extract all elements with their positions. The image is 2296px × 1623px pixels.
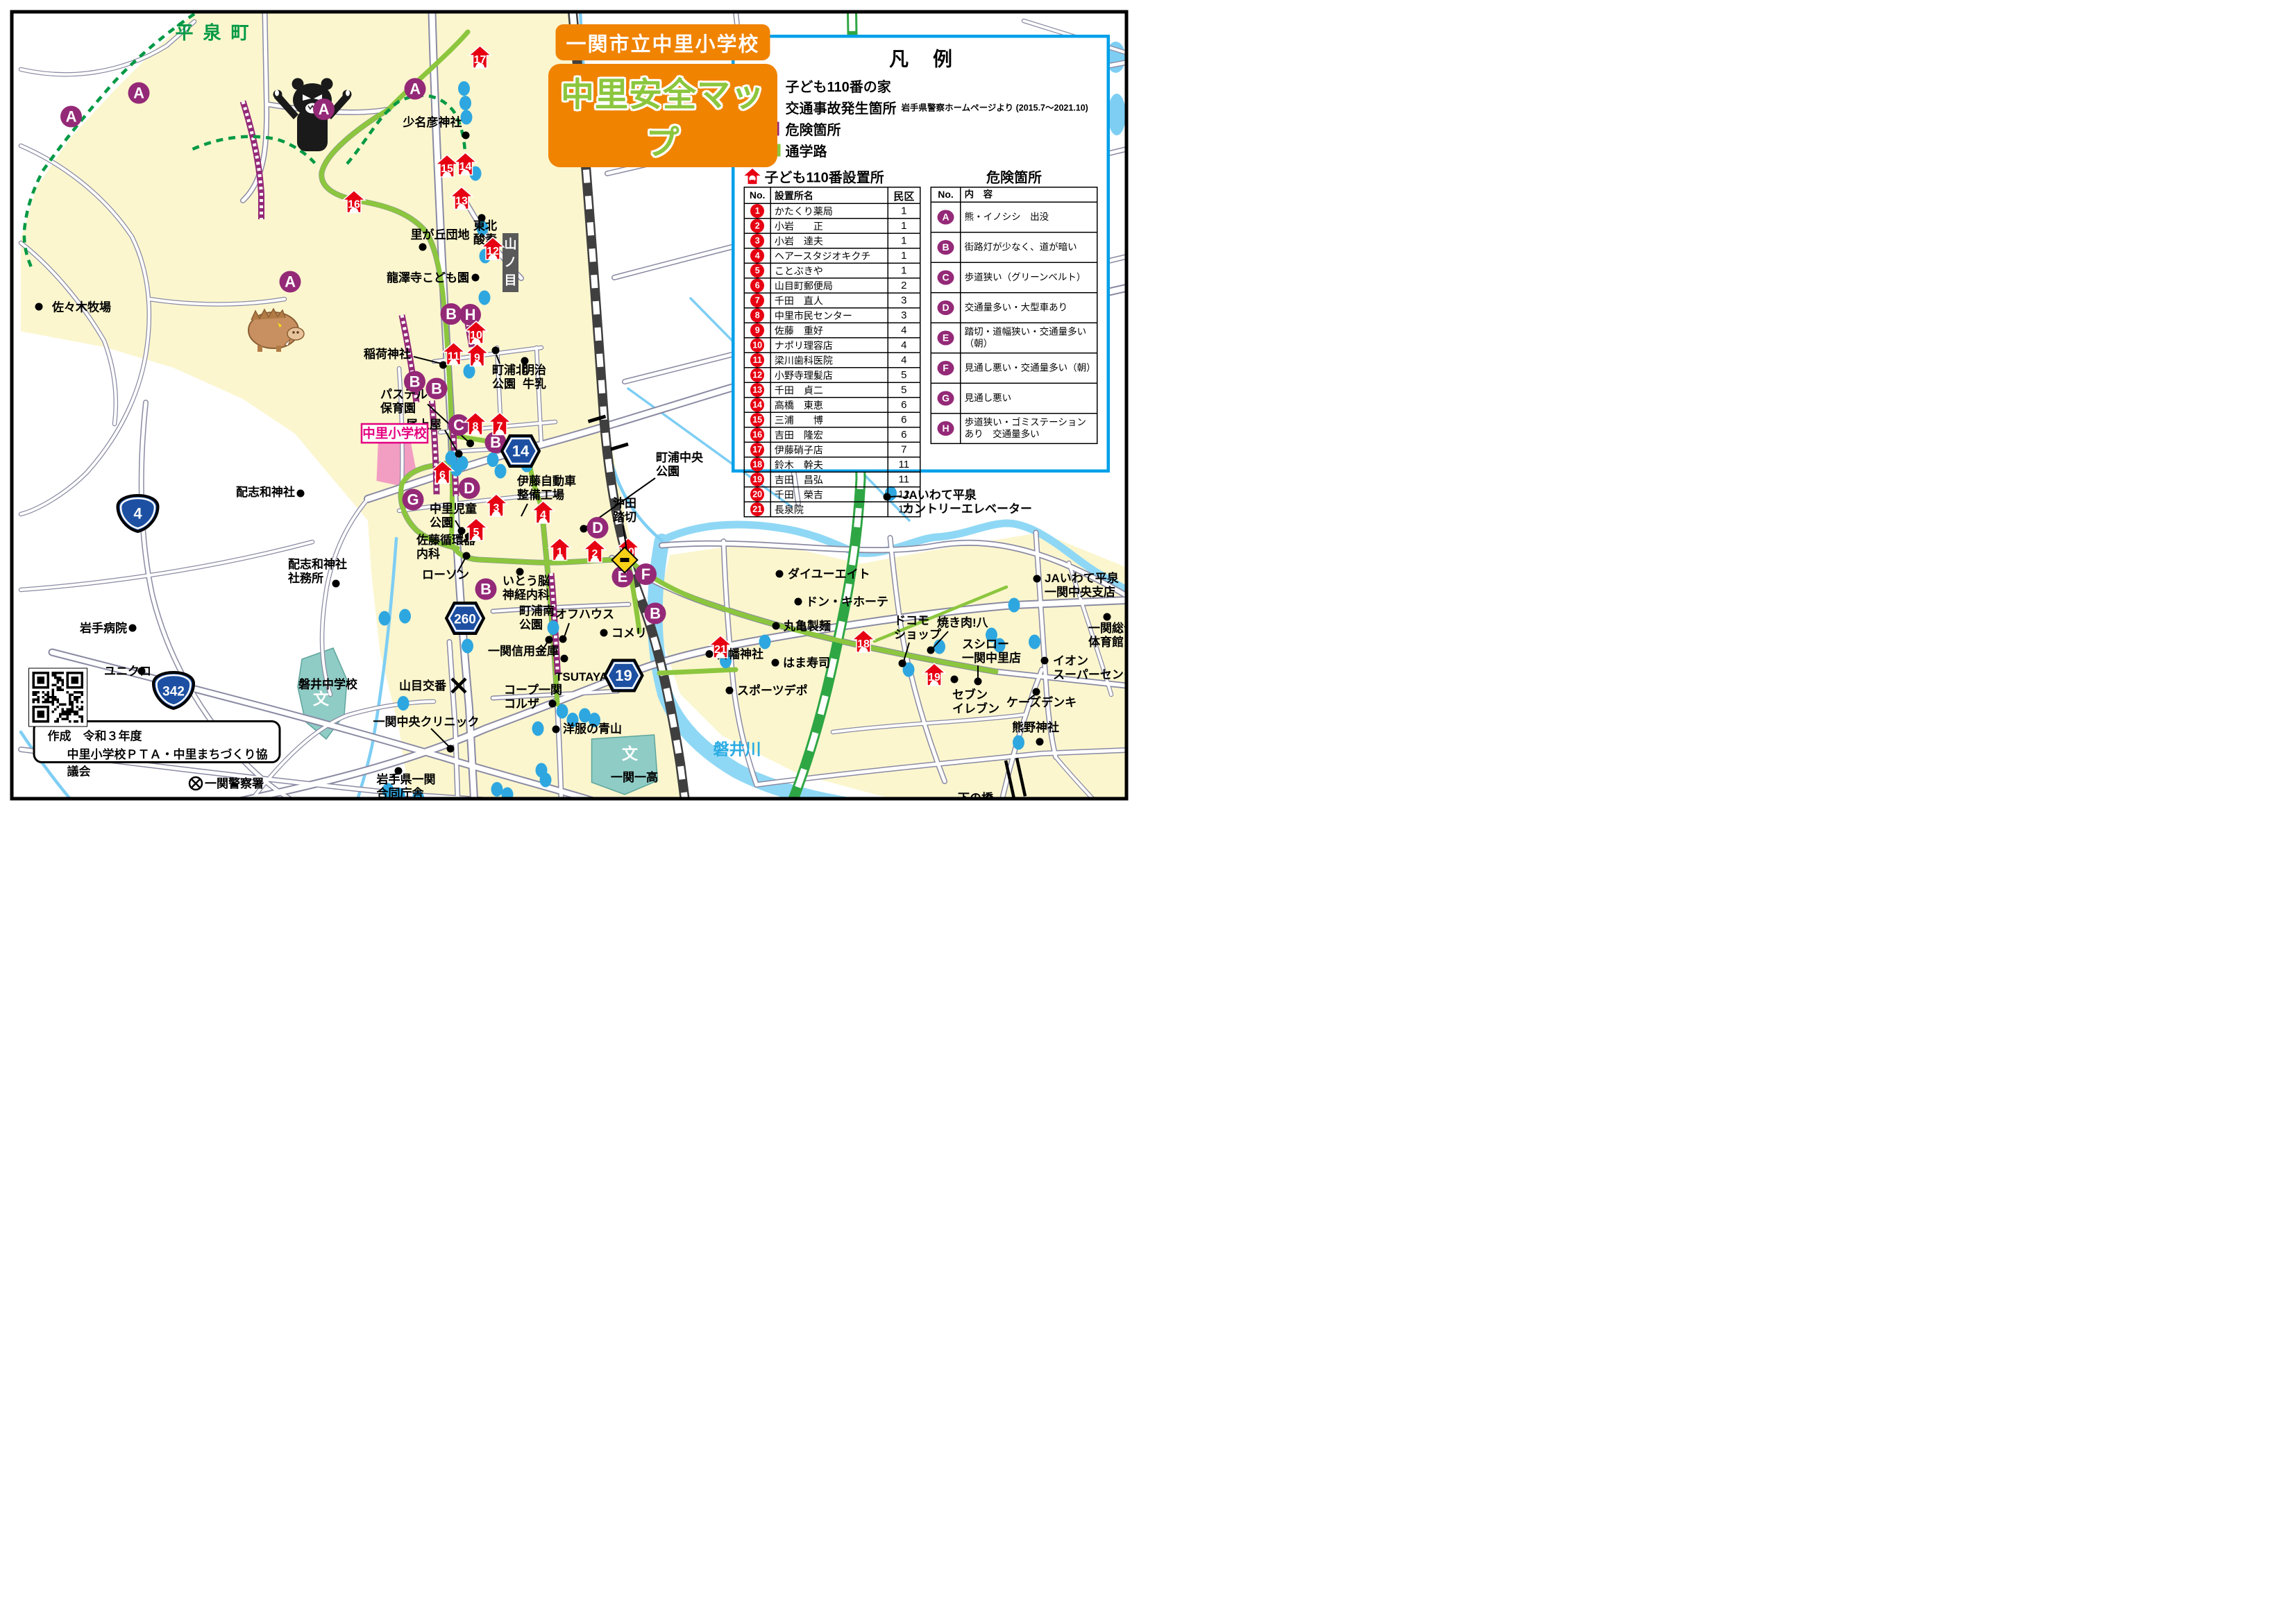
station-district: 1 bbox=[888, 263, 920, 278]
station-name: 吉田 昌弘 bbox=[770, 472, 888, 487]
qr-module bbox=[57, 720, 60, 723]
qr-module bbox=[76, 711, 79, 713]
qr-module bbox=[57, 689, 60, 692]
poi-label: スシロー bbox=[962, 638, 1009, 651]
poi-label: ローソン bbox=[422, 568, 469, 581]
river-name-label: 磐井川 bbox=[714, 740, 761, 758]
qr-module bbox=[52, 711, 55, 713]
qr-module bbox=[54, 674, 57, 677]
poi-label: 内科 bbox=[416, 547, 440, 561]
station-name: 山目町郵便局 bbox=[770, 278, 888, 294]
qr-module bbox=[59, 677, 62, 679]
qr-module bbox=[76, 706, 79, 708]
station-no: 13 bbox=[744, 382, 770, 398]
station-name: 小岩 達夫 bbox=[770, 233, 888, 248]
poi-label: TSUTAYA bbox=[555, 670, 608, 683]
shield-number: 260 bbox=[454, 613, 476, 627]
station-row: 20千田 榮吉12 bbox=[744, 487, 920, 502]
qr-module bbox=[47, 701, 50, 704]
qr-module bbox=[69, 704, 71, 706]
qr-module bbox=[71, 706, 74, 708]
poi-label: 一関中里店 bbox=[962, 651, 1021, 665]
poi-label: コメリ bbox=[611, 627, 647, 640]
qr-module bbox=[52, 674, 55, 677]
poi-label: 伊藤自動車 bbox=[516, 474, 576, 488]
poi-dot bbox=[129, 624, 137, 632]
qr-module bbox=[52, 701, 55, 704]
station-name: 梁川歯科医院 bbox=[770, 352, 888, 368]
danger-marker-C: C bbox=[448, 414, 470, 436]
qr-finder bbox=[71, 677, 79, 684]
accident-dot bbox=[759, 635, 771, 649]
qr-module bbox=[57, 706, 60, 708]
qr-module bbox=[71, 711, 74, 713]
station-row: 19吉田 昌弘11 bbox=[744, 472, 920, 487]
poi-dot bbox=[297, 490, 305, 498]
station-district: 3 bbox=[888, 293, 920, 308]
poi-label: 熊野神社 bbox=[1012, 720, 1059, 734]
legend-item-110-house: 子ども110番の家 bbox=[744, 75, 1098, 96]
qr-module bbox=[62, 713, 65, 716]
poi-dot bbox=[492, 347, 500, 355]
legend-item-accident: 交通事故発生箇所 岩手県警察ホームページより (2015.7～2021.10) bbox=[744, 96, 1098, 118]
child110-number: 21 bbox=[714, 644, 727, 656]
school-mark: 文 bbox=[313, 690, 330, 708]
qr-code bbox=[28, 668, 87, 729]
station-no: 20 bbox=[744, 487, 770, 502]
qr-module bbox=[62, 684, 65, 687]
danger-row: B街路灯が少なく、道が暗い bbox=[931, 232, 1097, 263]
station-no: 8 bbox=[744, 308, 770, 323]
qr-module bbox=[57, 677, 60, 679]
qr-module bbox=[69, 708, 71, 711]
map-title-main: 中里安全マップ bbox=[548, 64, 777, 167]
poi-label: イレブン bbox=[952, 702, 999, 715]
station-name: ナポリ理容店 bbox=[770, 338, 888, 353]
dangers-col-no: No. bbox=[931, 187, 961, 203]
station-name: ことぶきや bbox=[770, 263, 888, 278]
qr-module bbox=[57, 681, 60, 684]
danger-marker-letter: H bbox=[465, 306, 476, 323]
station-row: 18鈴木 幹夫11 bbox=[744, 457, 920, 473]
station-row: 7千田 直人3 bbox=[744, 293, 920, 308]
danger-content: 街路灯が少なく、道が暗い bbox=[961, 232, 1097, 263]
child110-number: 10 bbox=[470, 330, 482, 341]
station-no: 16 bbox=[744, 427, 770, 443]
danger-marker-B: B bbox=[404, 371, 425, 393]
station-no: 17 bbox=[744, 442, 770, 457]
qr-module bbox=[78, 708, 81, 711]
qr-module bbox=[62, 672, 65, 674]
accident-dot bbox=[462, 639, 473, 654]
qr-module bbox=[71, 704, 74, 706]
danger-row: A熊・イノシシ 出没 bbox=[931, 202, 1097, 232]
poi-dot bbox=[927, 647, 935, 654]
station-district: 11 bbox=[888, 472, 920, 487]
station-name: 佐藤 重好 bbox=[770, 323, 888, 338]
accident-dot bbox=[1008, 598, 1020, 613]
child110-number: 14 bbox=[459, 161, 472, 173]
qr-module bbox=[74, 699, 76, 702]
poi-dot bbox=[776, 570, 784, 578]
poi-label: セブン bbox=[952, 688, 988, 702]
danger-content: 踏切・道幅狭い・交通量多い（朝） bbox=[961, 323, 1097, 353]
qr-module bbox=[35, 699, 37, 702]
qr-module bbox=[44, 701, 47, 704]
danger-row: F見通し悪い・交通量多い（朝） bbox=[931, 353, 1097, 384]
station-district: 6 bbox=[888, 398, 920, 413]
qr-module bbox=[74, 691, 76, 694]
accident-dot bbox=[540, 773, 552, 788]
accident-dot bbox=[495, 464, 507, 479]
qr-module bbox=[47, 691, 50, 694]
danger-marker-letter: B bbox=[490, 434, 501, 451]
station-district: 3 bbox=[888, 308, 920, 323]
qr-module bbox=[81, 718, 84, 721]
danger-row: D交通量多い・大型車あり bbox=[931, 293, 1097, 323]
qr-module bbox=[62, 711, 65, 713]
danger-no: C bbox=[931, 262, 961, 293]
poi-label: 公園 bbox=[492, 377, 516, 391]
stations-column: 子ども110番設置所 No. 設置所名 民区 1かたくり薬局12小岩 正13小岩… bbox=[744, 166, 921, 518]
legend-item-danger: 危険箇所 bbox=[744, 118, 1098, 139]
qr-module bbox=[64, 711, 67, 713]
poi-label: コルザ bbox=[504, 697, 539, 711]
child110-number: 13 bbox=[455, 196, 468, 207]
stations-col-no: No. bbox=[744, 187, 770, 204]
danger-no: F bbox=[931, 353, 961, 384]
map-title-school: 一関市立中里小学校 bbox=[555, 24, 770, 60]
poi-label: 配志和神社 bbox=[288, 557, 347, 571]
poi-label: 洋服の青山 bbox=[563, 722, 622, 736]
credit-line1: 作成 令和３年度 bbox=[48, 726, 279, 744]
child110-number: 8 bbox=[473, 421, 479, 433]
accident-dot bbox=[1029, 635, 1040, 649]
qr-module bbox=[47, 696, 50, 699]
poi-label: 里が丘団地 bbox=[411, 228, 470, 241]
poi-dot bbox=[561, 655, 568, 663]
qr-code-image bbox=[28, 668, 87, 727]
qr-module bbox=[78, 696, 81, 699]
qr-module bbox=[69, 694, 71, 697]
station-no: 6 bbox=[744, 278, 770, 294]
qr-finder bbox=[37, 711, 45, 718]
qr-module bbox=[67, 718, 69, 721]
station-name: 長泉院 bbox=[770, 502, 888, 517]
poi-label: 整備工場 bbox=[517, 488, 564, 502]
child110-number: 1 bbox=[557, 547, 563, 559]
qr-module bbox=[62, 681, 65, 684]
child110-number: 5 bbox=[473, 527, 480, 538]
accident-dot bbox=[457, 456, 469, 470]
qr-module bbox=[81, 708, 84, 711]
station-district: 11 bbox=[888, 457, 920, 473]
poi-label: 岩手病院 bbox=[79, 621, 127, 635]
station-no: 14 bbox=[744, 398, 770, 413]
qr-module bbox=[64, 718, 67, 721]
qr-module bbox=[52, 684, 55, 687]
poi-label: ユニクロ bbox=[104, 665, 151, 678]
station-district: 6 bbox=[888, 427, 920, 443]
qr-module bbox=[64, 713, 67, 716]
danger-marker-D: D bbox=[587, 517, 609, 538]
qr-module bbox=[54, 696, 57, 699]
qr-module bbox=[44, 694, 47, 697]
qr-module bbox=[49, 696, 52, 699]
danger-marker-letter: D bbox=[464, 479, 475, 497]
qr-module bbox=[42, 696, 45, 699]
poi-dot bbox=[1036, 738, 1044, 746]
poi-label: 少名彦神社 bbox=[403, 115, 462, 129]
qr-module bbox=[76, 720, 79, 723]
qr-module bbox=[81, 691, 84, 694]
qr-module bbox=[62, 679, 65, 682]
legend-title: 凡例 bbox=[744, 44, 1098, 72]
qr-module bbox=[59, 715, 62, 718]
qr-module bbox=[67, 708, 69, 711]
poi-label: ケーズデンキ bbox=[1006, 695, 1077, 709]
child110-number: 15 bbox=[441, 163, 453, 175]
poi-dot bbox=[332, 580, 340, 588]
qr-module bbox=[52, 694, 55, 697]
qr-module bbox=[74, 696, 76, 699]
poi-label: 公園 bbox=[519, 618, 543, 631]
shield-number: 4 bbox=[133, 505, 142, 522]
child110-number: 2 bbox=[592, 548, 598, 560]
poi-dot bbox=[706, 650, 714, 658]
qr-module bbox=[74, 713, 76, 716]
danger-marker-letter: B bbox=[446, 305, 457, 323]
qr-module bbox=[35, 691, 37, 694]
shield-number: 14 bbox=[512, 443, 530, 460]
station-district: 2 bbox=[888, 278, 920, 294]
poi-dot bbox=[1041, 657, 1049, 665]
poi-dot bbox=[466, 440, 474, 448]
crossing-label: 沖田 bbox=[613, 496, 636, 510]
station-no: 19 bbox=[744, 472, 770, 487]
station-row: 9佐藤 重好4 bbox=[744, 323, 920, 338]
qr-module bbox=[37, 691, 40, 694]
qr-module bbox=[81, 694, 84, 697]
station-district: 4 bbox=[888, 338, 920, 353]
qr-module bbox=[67, 715, 69, 718]
qr-module bbox=[54, 684, 57, 687]
poi-dot bbox=[546, 636, 553, 644]
road-casing bbox=[21, 542, 312, 590]
child110-number: 19 bbox=[928, 672, 940, 683]
stations-col-district: 民区 bbox=[888, 187, 920, 204]
qr-module bbox=[81, 715, 84, 718]
danger-marker-letter: C bbox=[453, 416, 464, 434]
station-district: 7 bbox=[888, 442, 920, 457]
accident-dot bbox=[491, 782, 503, 797]
danger-marker-letter: A bbox=[133, 85, 144, 102]
route-shield-14: 14 bbox=[502, 436, 539, 466]
road bbox=[21, 542, 312, 590]
danger-no: A bbox=[931, 202, 961, 232]
poi-label: 岩手県一関 bbox=[376, 772, 436, 786]
poi-dot bbox=[773, 622, 780, 630]
qr-module bbox=[44, 699, 47, 702]
accident-source-note: 岩手県警察ホームページより (2015.7～2021.10) bbox=[902, 101, 1088, 114]
qr-module bbox=[54, 708, 57, 711]
qr-module bbox=[67, 691, 69, 694]
stations-table: No. 設置所名 民区 1かたくり薬局12小岩 正13小岩 達夫14ヘアースタジ… bbox=[744, 187, 921, 518]
poi-label: 丸亀製麺 bbox=[783, 619, 831, 633]
qr-module bbox=[71, 694, 74, 697]
station-district: 5 bbox=[888, 382, 920, 398]
child110-number: 4 bbox=[540, 509, 546, 521]
poi-dot bbox=[472, 274, 480, 282]
danger-marker-A: A bbox=[405, 78, 426, 100]
poi-dot bbox=[439, 362, 447, 369]
child110-number: 11 bbox=[448, 351, 459, 363]
qr-module bbox=[71, 708, 74, 711]
qr-module bbox=[64, 704, 67, 706]
danger-content: 見通し悪い bbox=[961, 383, 1097, 414]
danger-row: E踏切・道幅狭い・交通量多い（朝） bbox=[931, 323, 1097, 353]
poi-dot bbox=[35, 303, 43, 311]
poi-dot bbox=[455, 450, 463, 458]
danger-marker-A: A bbox=[280, 271, 301, 293]
accident-dot bbox=[1013, 736, 1024, 750]
poi-dot bbox=[552, 726, 560, 733]
child110-number: 7 bbox=[497, 421, 503, 433]
accident-dot bbox=[398, 696, 410, 711]
station-name-label: ノ bbox=[505, 255, 517, 269]
station-row: 13千田 貞二5 bbox=[744, 382, 920, 398]
danger-content: 歩道狭い・ゴミステーションあり 交通量多い bbox=[961, 414, 1097, 444]
poi-label: ダイユーエイト bbox=[788, 567, 870, 581]
route-shield-4: 4 bbox=[118, 495, 158, 532]
qr-module bbox=[52, 672, 55, 674]
station-row: 8中里市民センター3 bbox=[744, 308, 920, 323]
town-name-label: 平泉町 bbox=[176, 22, 259, 43]
qr-module bbox=[35, 694, 37, 697]
legend-item-route: 通学路 bbox=[744, 139, 1098, 161]
poi-label: 公園 bbox=[430, 516, 453, 529]
station-no: 4 bbox=[744, 248, 770, 264]
qr-module bbox=[76, 699, 79, 702]
danger-marker-letter: A bbox=[319, 101, 330, 118]
station-name: かたくり薬局 bbox=[770, 203, 888, 219]
poi-label: コープ一関 bbox=[504, 683, 562, 697]
accident-dot bbox=[557, 704, 568, 719]
poi-label: 体育館 bbox=[1088, 635, 1124, 649]
child110-number: 12 bbox=[487, 246, 499, 257]
poi-dot bbox=[772, 659, 779, 667]
station-name: 鈴木 幹夫 bbox=[770, 457, 888, 473]
qr-module bbox=[57, 672, 60, 674]
station-no: 18 bbox=[744, 457, 770, 473]
child110-number: 9 bbox=[474, 352, 480, 364]
station-district: 5 bbox=[888, 368, 920, 383]
qr-module bbox=[37, 696, 40, 699]
qr-module bbox=[71, 701, 74, 704]
accident-dot bbox=[399, 609, 411, 624]
station-row: 10ナポリ理容店4 bbox=[744, 338, 920, 353]
qr-module bbox=[81, 720, 84, 723]
child-110-house-icon bbox=[744, 168, 761, 185]
credit-line2: 中里小学校ＰＴＡ・中里まちづくり協議会 bbox=[67, 745, 279, 779]
danger-marker-letter: A bbox=[66, 108, 77, 126]
poi-dot bbox=[463, 552, 471, 560]
station-no: 21 bbox=[744, 502, 770, 517]
stations-col-name: 設置所名 bbox=[770, 187, 888, 204]
danger-no: H bbox=[931, 414, 961, 444]
station-row: 12小野寺理髪店5 bbox=[744, 368, 920, 383]
school-route bbox=[659, 670, 736, 673]
danger-marker-letter: B bbox=[650, 605, 661, 622]
qr-module bbox=[59, 672, 62, 674]
qr-module bbox=[81, 701, 84, 704]
station-no: 5 bbox=[744, 263, 770, 278]
station-row: 1かたくり薬局1 bbox=[744, 203, 920, 219]
qr-module bbox=[42, 701, 45, 704]
poi-dot bbox=[726, 687, 734, 695]
qr-module bbox=[59, 689, 62, 692]
poi-dot bbox=[1033, 688, 1040, 696]
station-row: 16吉田 隆宏6 bbox=[744, 427, 920, 443]
poi-label: 磐井中学校 bbox=[298, 677, 358, 691]
station-district: 4 bbox=[888, 352, 920, 368]
poi-dot bbox=[419, 244, 427, 251]
qr-module bbox=[59, 704, 62, 706]
poi-label: 龍澤寺こども園 bbox=[387, 271, 469, 284]
school-mark: 文 bbox=[622, 745, 639, 763]
poi-label: 佐藤循環器 bbox=[416, 533, 476, 547]
danger-content: 熊・イノシシ 出没 bbox=[961, 202, 1097, 232]
safety-map-page: 平泉町磐井川山ノ目佐々木牧場少名彦神社東北酸素里が丘団地龍澤寺こども園稲荷神社町… bbox=[0, 0, 1148, 812]
station-row: 11梁川歯科医院4 bbox=[744, 352, 920, 368]
station-name: 千田 榮吉 bbox=[770, 487, 888, 502]
qr-module bbox=[33, 694, 35, 697]
dangers-table-title: 危険箇所 bbox=[930, 166, 1097, 187]
danger-marker-B: B bbox=[645, 603, 666, 624]
qr-module bbox=[52, 691, 55, 694]
poi-label: 明治 bbox=[523, 363, 546, 377]
poi-dot bbox=[795, 598, 802, 606]
danger-marker-letter: F bbox=[641, 566, 650, 583]
station-row: 2小岩 正1 bbox=[744, 219, 920, 234]
qr-module bbox=[59, 686, 62, 689]
station-row: 15三浦 博6 bbox=[744, 412, 920, 427]
station-row: 6山目町郵便局2 bbox=[744, 278, 920, 294]
poi-label: 東北 bbox=[473, 219, 497, 232]
child110-number: 18 bbox=[857, 638, 870, 650]
poi-label: スポーツデポ bbox=[737, 683, 808, 697]
poi-label: 牛乳 bbox=[523, 377, 546, 391]
poi-label: 神経内科 bbox=[503, 588, 550, 602]
danger-marker-D: D bbox=[459, 477, 480, 499]
danger-marker-letter: A bbox=[285, 273, 296, 291]
danger-no: E bbox=[931, 323, 961, 353]
qr-module bbox=[54, 699, 57, 702]
station-district: 1 bbox=[888, 219, 920, 234]
accident-dot bbox=[379, 611, 391, 626]
station-name: 小野寺理髪店 bbox=[770, 368, 888, 383]
poi-dot bbox=[559, 636, 567, 643]
station-district: 6 bbox=[888, 412, 920, 427]
station-row: 4ヘアースタジオキクチ1 bbox=[744, 248, 920, 264]
station-name: 伊藤硝子店 bbox=[770, 442, 888, 457]
accident-dot bbox=[532, 722, 544, 736]
poi-label: 一関中央クリニック bbox=[373, 715, 480, 729]
qr-module bbox=[52, 704, 55, 706]
station-no: 7 bbox=[744, 293, 770, 308]
station-district: 1 bbox=[888, 248, 920, 264]
station-row: 3小岩 達夫1 bbox=[744, 233, 920, 248]
